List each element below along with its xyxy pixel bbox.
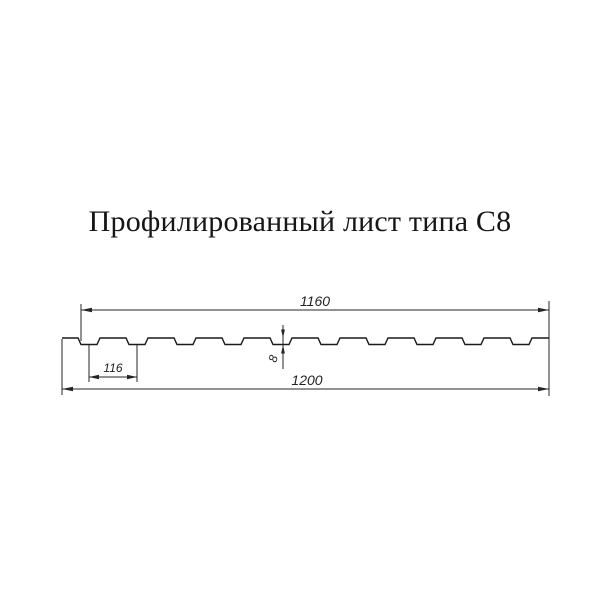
arrowhead-8-top	[281, 330, 285, 339]
dimension-8	[281, 325, 285, 369]
arrowhead-1200-right	[538, 387, 549, 392]
arrowhead-1160-left	[81, 308, 92, 313]
arrowhead-116-right	[127, 375, 137, 379]
profile-outline	[62, 338, 549, 345]
drawing-page: Профилированный лист типа С8 1160 116	[0, 0, 600, 600]
arrowhead-1200-left	[62, 387, 73, 392]
arrowhead-8-bottom	[281, 345, 285, 354]
profile-diagram-svg: 1160 116 8 1200	[0, 0, 600, 600]
dim-label-8: 8	[266, 353, 281, 364]
dim-label-1200: 1200	[291, 372, 322, 388]
dim-label-116: 116	[103, 361, 122, 375]
dim-label-1160: 1160	[300, 293, 330, 309]
arrowhead-1160-right	[538, 308, 549, 313]
arrowhead-116-left	[89, 375, 99, 379]
